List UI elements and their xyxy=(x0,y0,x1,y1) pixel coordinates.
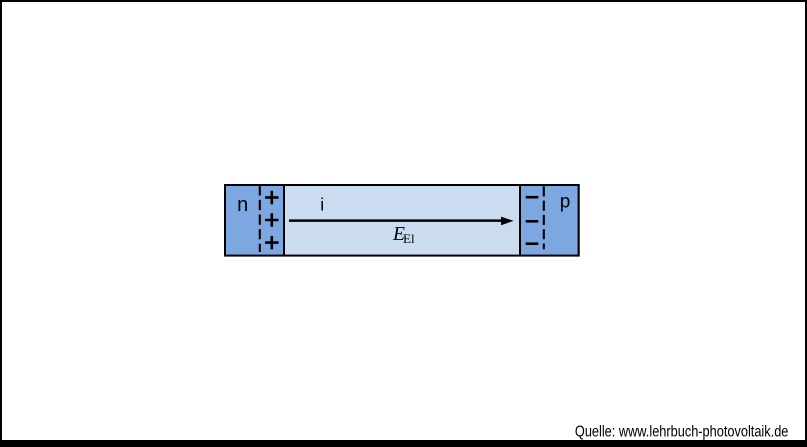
svg-text:p: p xyxy=(560,192,571,213)
svg-text:n: n xyxy=(237,194,248,216)
svg-text:i: i xyxy=(320,195,324,215)
svg-text:Quelle: www.lehrbuch-photovolt: Quelle: www.lehrbuch-photovoltaik.de xyxy=(575,424,789,441)
svg-text:El: El xyxy=(403,231,415,246)
